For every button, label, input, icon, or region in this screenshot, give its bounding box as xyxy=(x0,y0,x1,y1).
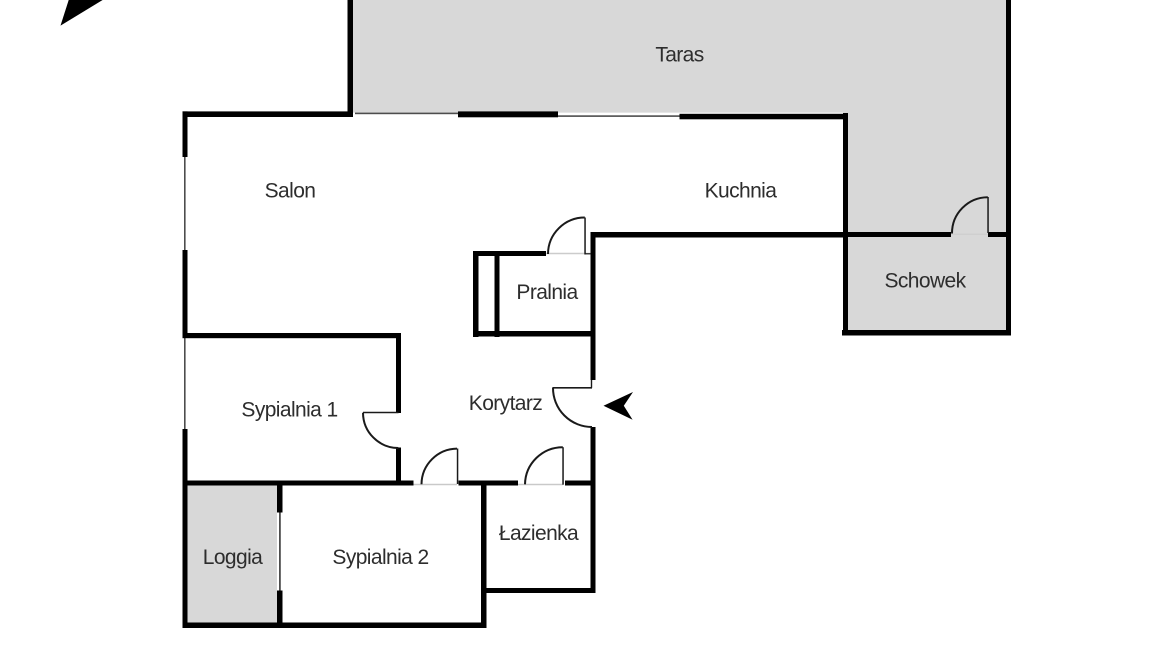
svg-text:Pralnia: Pralnia xyxy=(516,281,578,304)
svg-text:Sypialnia 1: Sypialnia 1 xyxy=(241,398,337,421)
svg-text:Kuchnia: Kuchnia xyxy=(705,180,778,203)
svg-text:Loggia: Loggia xyxy=(203,546,263,569)
svg-text:Taras: Taras xyxy=(655,43,703,66)
svg-text:Korytarz: Korytarz xyxy=(469,392,542,415)
svg-text:Sypialnia 2: Sypialnia 2 xyxy=(332,546,428,569)
svg-text:Łazienka: Łazienka xyxy=(499,522,579,545)
svg-text:Salon: Salon xyxy=(265,179,316,202)
svg-text:Schowek: Schowek xyxy=(884,270,966,293)
